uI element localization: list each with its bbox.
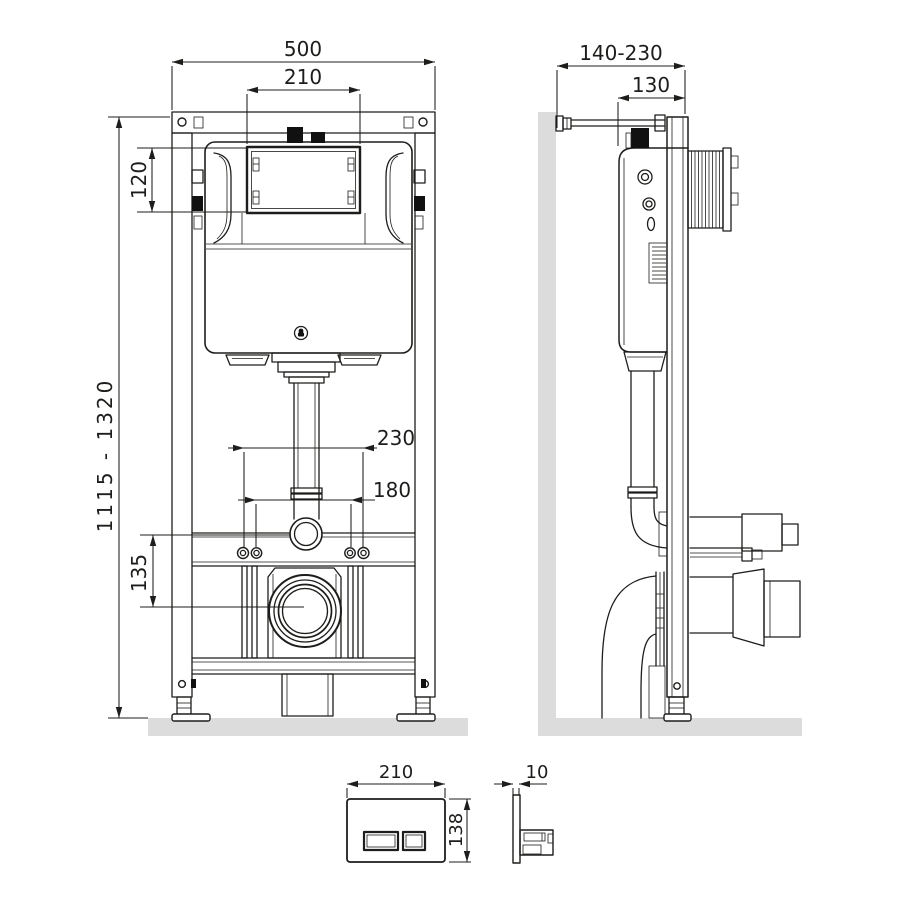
dim-label-10: 10 xyxy=(526,762,549,783)
technical-drawing: 500 210 120 xyxy=(0,0,900,900)
dim-label-138: 138 xyxy=(446,813,467,847)
dim-label-180: 180 xyxy=(373,478,411,502)
dim-label-135: 135 xyxy=(127,554,151,592)
dim-label-500: 500 xyxy=(284,37,322,61)
bowl-waste-connector xyxy=(690,569,800,646)
flush-pipe xyxy=(226,353,381,519)
dim-label-210: 210 xyxy=(284,65,322,89)
dim-label-120: 120 xyxy=(127,161,151,199)
dim-label-230: 230 xyxy=(377,426,415,450)
window-clips xyxy=(253,158,354,204)
side-dimensions: 140-230 130 xyxy=(557,41,685,146)
flush-pipe-side xyxy=(628,371,667,556)
dim-frame-depth: 130 xyxy=(618,73,685,146)
dim-plate-height: 138 xyxy=(446,799,471,862)
dim-frame-height: 1115 - 1320 xyxy=(93,117,170,718)
dim-window-height: 120 xyxy=(127,148,246,212)
flush-plate-front-view: 210 138 xyxy=(347,762,471,862)
flush-plate xyxy=(347,799,445,862)
cistern xyxy=(192,127,425,353)
waste-elbow xyxy=(602,572,665,718)
bowl-flush-connector xyxy=(690,514,798,561)
mounting-crossbar xyxy=(192,518,415,566)
waste-outlet xyxy=(192,566,415,716)
wall-surface xyxy=(538,112,556,718)
frame-rail-side xyxy=(667,117,688,697)
front-dimensions: 500 210 120 xyxy=(93,37,435,718)
vent-cap xyxy=(311,132,325,143)
flush-plate-mechanism xyxy=(520,830,553,855)
dim-label-plate-210: 210 xyxy=(379,762,413,783)
inlet-cap-side xyxy=(631,128,649,148)
dim-plate-thickness: 10 xyxy=(494,762,548,795)
flush-plate-profile xyxy=(513,795,520,863)
flush-plate-window xyxy=(247,147,360,213)
cistern-side xyxy=(619,128,688,371)
dim-label-140-230: 140-230 xyxy=(579,41,663,65)
dim-window-width: 210 xyxy=(247,65,360,144)
dim-label-height-range: 1115 - 1320 xyxy=(93,378,117,533)
frame-hanger-hole xyxy=(419,118,427,126)
front-view: 500 210 120 xyxy=(93,37,468,736)
dim-label-130: 130 xyxy=(632,73,670,97)
cistern-emblem-icon xyxy=(295,327,308,340)
flush-plate-side-view: 10 xyxy=(494,762,553,863)
flush-plate-duct xyxy=(688,148,738,231)
adjustable-feet xyxy=(172,697,435,721)
water-inlet-cap xyxy=(287,127,303,143)
side-foot xyxy=(664,683,691,721)
dim-plate-width: 210 xyxy=(347,762,445,798)
side-view: 140-230 130 xyxy=(538,41,802,736)
outlet-spigot-cover xyxy=(282,674,333,716)
